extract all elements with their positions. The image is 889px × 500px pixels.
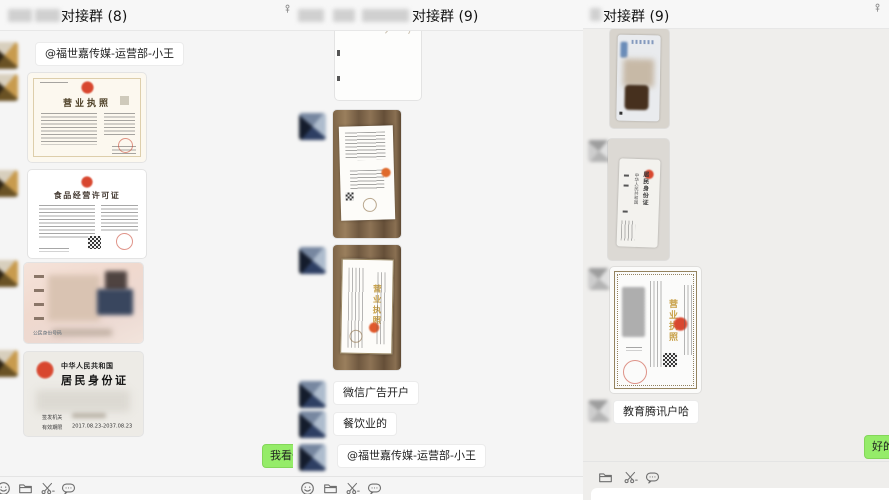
text-lines xyxy=(34,275,44,278)
qr-code xyxy=(346,192,354,200)
document: 营业执照 xyxy=(340,259,394,355)
blurred-group-name xyxy=(333,9,355,22)
avatar[interactable] xyxy=(299,381,326,408)
message-list-right[interactable]: 居民身份证 中华人民共和国 营业执照 xyxy=(583,0,889,500)
chat-message[interactable]: @福世嘉传媒-运营部-小王 xyxy=(337,444,486,468)
pin-icon[interactable] xyxy=(282,3,293,15)
message-list-middle[interactable]: 营业执照 微信广告开户 餐饮业的 @福世嘉传媒-运营部-小王 xyxy=(293,0,583,500)
national-emblem-icon xyxy=(36,361,54,379)
chat-title: 对接群 (9) xyxy=(603,6,669,26)
image-id-photo[interactable] xyxy=(610,29,669,128)
image-id-card-back[interactable]: 中华人民共和国 居民身份证 签发机关 有效期限 2017.08.23-2037.… xyxy=(24,352,143,436)
binding-mark xyxy=(337,76,340,81)
seal-outline xyxy=(118,138,133,153)
chat-message[interactable]: 教育腾讯户哈 xyxy=(613,400,699,424)
pin-icon[interactable] xyxy=(872,2,883,14)
image-food-permit[interactable]: 食品经营许可证 xyxy=(28,170,146,258)
chat-title: 对接群 (9) xyxy=(412,6,478,26)
id-card: 居民身份证 中华人民共和国 xyxy=(616,158,660,247)
mark xyxy=(619,112,622,115)
chat-message-outgoing[interactable]: 我看一 xyxy=(262,444,294,468)
message-input[interactable] xyxy=(293,494,583,500)
message-input[interactable] xyxy=(0,494,293,500)
messages-icon[interactable] xyxy=(645,470,660,485)
chat-window-right: 居民身份证 中华人民共和国 营业执照 xyxy=(583,0,889,500)
mark xyxy=(623,210,628,212)
text-lines xyxy=(104,113,135,135)
card-type-vertical: 居民身份证 xyxy=(640,171,650,206)
blur-region xyxy=(623,59,654,88)
avatar[interactable] xyxy=(299,247,326,274)
text-lines xyxy=(34,317,44,320)
chat-title: 对接群 (8) xyxy=(61,6,127,26)
avatar[interactable] xyxy=(299,113,326,140)
watermark-block xyxy=(622,287,645,337)
mark xyxy=(624,174,629,176)
avatar[interactable] xyxy=(0,74,18,101)
permit-title: 食品经营许可证 xyxy=(28,190,146,201)
chat-message[interactable]: @福世嘉传媒-运营部-小王 xyxy=(35,42,184,66)
country-vertical: 中华人民共和国 xyxy=(632,173,639,205)
text-lines xyxy=(684,285,692,355)
hologram xyxy=(120,96,129,105)
text-lines xyxy=(34,303,44,306)
mark xyxy=(624,184,629,186)
text-lines xyxy=(39,205,95,240)
blurred-group-name xyxy=(35,9,60,22)
issue-authority-label: 签发机关 xyxy=(42,413,62,421)
blue-text-block xyxy=(620,42,627,58)
text-lines xyxy=(376,272,387,344)
screenshot-icon[interactable] xyxy=(623,470,638,485)
id-card xyxy=(616,35,660,122)
chat-message[interactable]: 餐饮业的 xyxy=(333,412,397,436)
document xyxy=(339,125,395,220)
toolbar-divider xyxy=(293,476,583,477)
avatar[interactable] xyxy=(0,170,18,197)
country-name: 中华人民共和国 xyxy=(61,361,114,371)
text-lines xyxy=(41,113,97,145)
blurred-group-name xyxy=(8,9,32,22)
text-lines xyxy=(34,289,44,292)
message-list-left[interactable]: @福世嘉传媒-运营部-小王 营业执照 食品经营许可证 xyxy=(0,0,293,500)
card-type: 居民身份证 xyxy=(61,372,129,388)
text-lines xyxy=(101,205,138,232)
text-lines xyxy=(350,170,385,191)
validity-label: 有效期限 xyxy=(42,423,62,431)
image-business-license[interactable]: 营业执照 xyxy=(28,73,146,162)
qr-code xyxy=(663,353,677,367)
avatar[interactable] xyxy=(588,140,610,162)
text-lines xyxy=(40,82,68,85)
image-id-back-photo[interactable]: 居民身份证 中华人民共和国 xyxy=(608,139,669,260)
seal-outline xyxy=(363,198,377,212)
emblem-icon xyxy=(81,176,93,188)
text-lines xyxy=(621,220,636,240)
blurred-group-name xyxy=(298,9,324,22)
seal-outline xyxy=(623,360,647,384)
avatar[interactable] xyxy=(0,350,18,377)
chat-message-outgoing[interactable]: 好的 xyxy=(864,435,889,459)
seal-outline xyxy=(116,233,133,250)
avatar[interactable] xyxy=(588,268,610,290)
image-id-card-front[interactable]: 公民身份号码 xyxy=(24,263,143,343)
image-license-on-table[interactable]: 营业执照 xyxy=(333,245,401,370)
qr-code xyxy=(88,236,101,249)
blur-region xyxy=(72,413,106,418)
message-input[interactable] xyxy=(591,488,889,500)
blurred-group-name xyxy=(590,8,601,21)
text-lines xyxy=(650,281,662,367)
watermark-pattern xyxy=(36,390,130,412)
text-lines xyxy=(632,40,655,44)
chat-message[interactable]: 微信广告开户 xyxy=(333,381,419,405)
blur-region xyxy=(48,275,100,321)
window-header: 对接群 (9) xyxy=(293,0,583,31)
avatar[interactable] xyxy=(299,444,326,471)
photo-region xyxy=(624,85,648,110)
avatar[interactable] xyxy=(0,42,18,69)
seal-icon xyxy=(381,167,391,177)
seal-icon xyxy=(81,81,94,94)
chat-window-left: @福世嘉传媒-运营部-小王 营业执照 食品经营许可证 xyxy=(0,0,294,500)
blurred-group-name xyxy=(362,9,409,22)
desktop: @福世嘉传媒-运营部-小王 营业执照 食品经营许可证 xyxy=(0,0,889,500)
binding-mark xyxy=(337,50,340,56)
photo-head xyxy=(105,271,127,291)
photo-body xyxy=(97,289,133,315)
avatar[interactable] xyxy=(299,411,326,438)
folder-icon[interactable] xyxy=(598,470,613,485)
toolbar-divider xyxy=(583,461,889,462)
avatar[interactable] xyxy=(588,400,610,422)
toolbar-divider xyxy=(0,476,293,477)
window-header: 对接群 (9) xyxy=(583,0,889,29)
text-lines xyxy=(345,132,386,161)
image-business-license-vertical[interactable]: 营业执照 xyxy=(610,267,701,393)
text-lines xyxy=(39,248,69,252)
image-permit-on-table[interactable] xyxy=(333,110,401,238)
avatar[interactable] xyxy=(0,260,18,287)
window-header: 对接群 (8) xyxy=(0,0,293,31)
id-number-label: 公民身份号码 xyxy=(33,329,62,336)
text-lines xyxy=(626,347,642,351)
validity-dates: 2017.08.23-2037.08.23 xyxy=(72,423,132,429)
chat-window-middle: 营业执照 微信广告开户 餐饮业的 @福世嘉传媒-运营部-小王 对接群 (9) xyxy=(293,0,584,500)
